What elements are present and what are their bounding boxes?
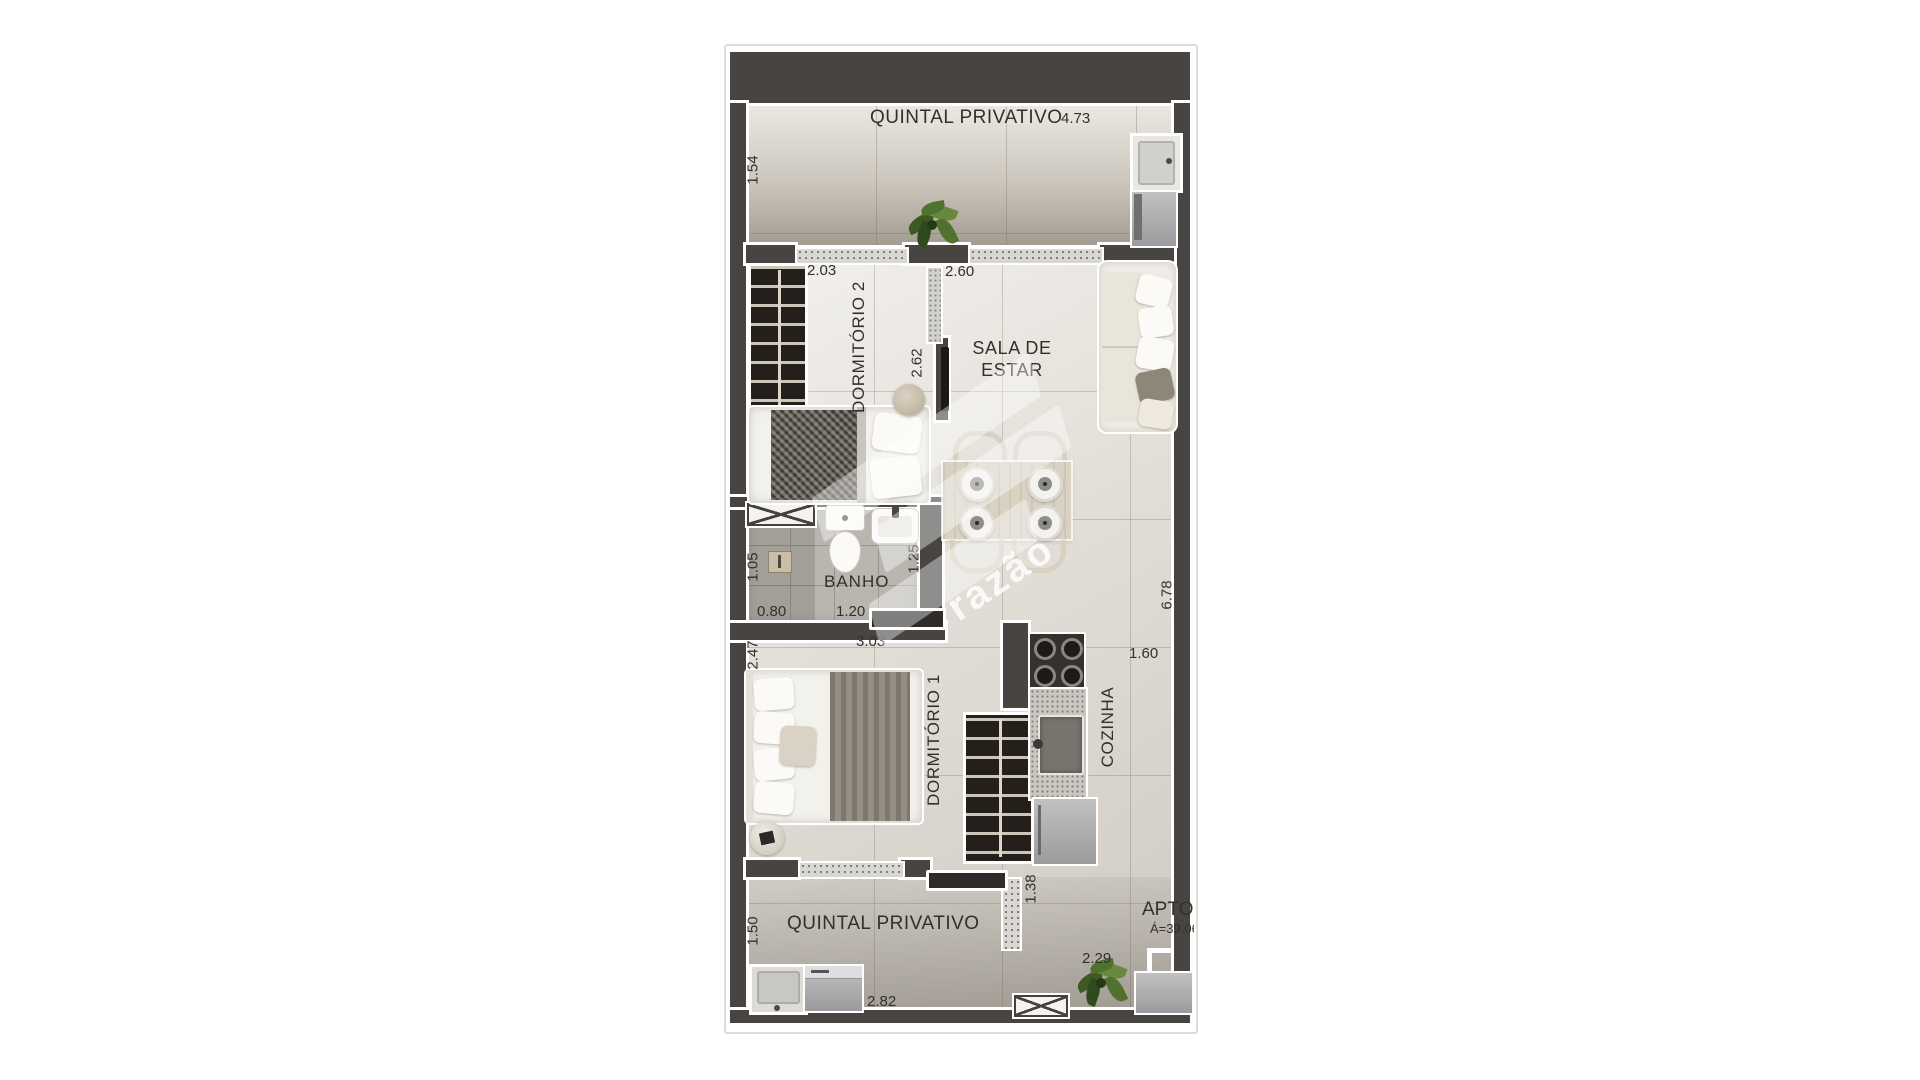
cozinha-label: COZINHA — [1098, 687, 1118, 768]
sala-label: SALA DE ESTAR — [950, 337, 1074, 381]
dorm1-wardrobe-icon — [963, 712, 1034, 864]
burner — [1034, 638, 1056, 660]
tank-drain — [774, 1005, 780, 1011]
kitchen-sliding-door-icon — [926, 870, 1008, 891]
toilet-icon — [826, 506, 864, 574]
side-table-icon — [750, 821, 784, 855]
banho-sliding-door-icon — [869, 608, 946, 630]
fridge-handle — [1038, 805, 1041, 855]
headboard — [746, 670, 753, 823]
unit-area-label: Á=39.06 — [1150, 921, 1194, 936]
dorm1-label: DORMITÓRIO 1 — [924, 674, 944, 806]
burner — [1061, 638, 1083, 660]
banho-depth-dim: 1.05 — [745, 552, 762, 581]
wall-south-a — [746, 860, 798, 877]
washer-panel — [1134, 194, 1142, 240]
quintal-bottom-depth-dim: 1.50 — [745, 916, 762, 945]
book-icon — [759, 831, 775, 846]
dorm1-window-icon — [798, 861, 905, 879]
dorm1-width-dim: 3.03 — [856, 633, 885, 650]
burner — [1061, 665, 1083, 687]
banho-label: BANHO — [824, 572, 889, 592]
plate-icon — [1027, 505, 1063, 541]
faucet-icon — [1033, 739, 1043, 749]
dorm2-bed-icon — [749, 407, 929, 503]
toilet-bowl — [830, 532, 860, 572]
banho-width-dim: 1.20 — [836, 603, 865, 620]
quintal-bottom-label: QUINTAL PRIVATIVO — [787, 913, 980, 935]
pillow — [1134, 335, 1175, 373]
pillow — [871, 411, 923, 455]
kitchen-counter-icon — [1028, 687, 1088, 801]
dorm1-depth-dim: 2.47 — [745, 640, 762, 669]
sofa-icon — [1099, 262, 1176, 432]
shower-drain-icon — [768, 551, 792, 573]
wall-top-band — [730, 52, 1190, 103]
quintal-window-icon — [1014, 995, 1068, 1017]
dorm1-bed-icon — [746, 670, 922, 823]
quintal-top-depth-dim: 1.54 — [745, 155, 762, 184]
shower-width-dim: 0.80 — [757, 603, 786, 620]
bed-blanket — [771, 410, 857, 500]
fridge-icon — [1032, 797, 1098, 866]
plate-icon — [959, 466, 995, 502]
laundry-tank-bottom-icon — [749, 964, 808, 1015]
dorm2-depth-dim: 2.62 — [909, 348, 926, 377]
sala-sliding-door-icon — [968, 247, 1104, 265]
kitchen-sink-icon — [1038, 715, 1084, 775]
quintal-right-width-dim: 2.29 — [1082, 950, 1111, 967]
quintal-top-label: QUINTAL PRIVATIVO — [870, 107, 1063, 129]
chair-icon — [950, 540, 1004, 573]
plate-icon — [959, 505, 995, 541]
quintal-top-width-dim: 4.73 — [1061, 110, 1090, 127]
passage-width-dim: 1.38 — [1023, 874, 1040, 903]
dorm2-width-dim: 2.03 — [807, 262, 836, 279]
tv-icon — [941, 347, 949, 411]
dining-table-icon — [943, 462, 1071, 539]
plant-top-icon — [903, 200, 963, 250]
total-depth-dim: 6.78 — [1159, 580, 1176, 609]
cozinha-width-dim: 1.60 — [1129, 645, 1158, 662]
plate-icon — [1027, 466, 1063, 502]
wall-north-a — [746, 245, 795, 263]
pillow — [753, 780, 796, 815]
sala-width-dim: 2.60 — [945, 263, 974, 280]
laundry-tank-top-icon — [1130, 133, 1183, 193]
floor-plan-canvas: QUINTAL PRIVATIVO 4.73 1.54 2.03 2.60 DO… — [0, 0, 1920, 1080]
dorm2-stool-icon — [893, 384, 925, 416]
cushion — [779, 725, 817, 767]
laundry-bench-icon — [1134, 971, 1192, 1015]
pillow — [753, 676, 796, 711]
dorm2-door-icon — [926, 266, 943, 344]
washer-bottom-icon — [803, 964, 864, 1013]
banho-right-depth-dim: 1.25 — [906, 544, 923, 573]
bed-blanket — [830, 672, 910, 821]
chair-icon — [953, 431, 1007, 464]
stove-icon — [1028, 632, 1086, 691]
quintal-bottom-width-dim: 2.82 — [867, 993, 896, 1010]
bed-fold — [857, 407, 866, 503]
tank-drain — [1166, 158, 1172, 164]
washer-top-icon — [1130, 190, 1178, 248]
banho-window-icon — [747, 503, 815, 526]
chair-icon — [1012, 540, 1066, 573]
unit-label: APTO. — [1142, 899, 1194, 921]
faucet-icon — [892, 506, 899, 518]
dorm2-wardrobe-icon — [748, 263, 808, 412]
burner — [1034, 665, 1056, 687]
pillow — [869, 454, 923, 499]
pillow — [1137, 398, 1175, 431]
dorm2-label: DORMITÓRIO 2 — [849, 281, 869, 413]
washbasin-icon — [872, 509, 918, 543]
wall-dorm1-east — [1003, 623, 1028, 708]
quintal-door-frame-icon — [1147, 948, 1174, 973]
chair-icon — [1013, 431, 1067, 464]
pillow — [1137, 305, 1175, 339]
